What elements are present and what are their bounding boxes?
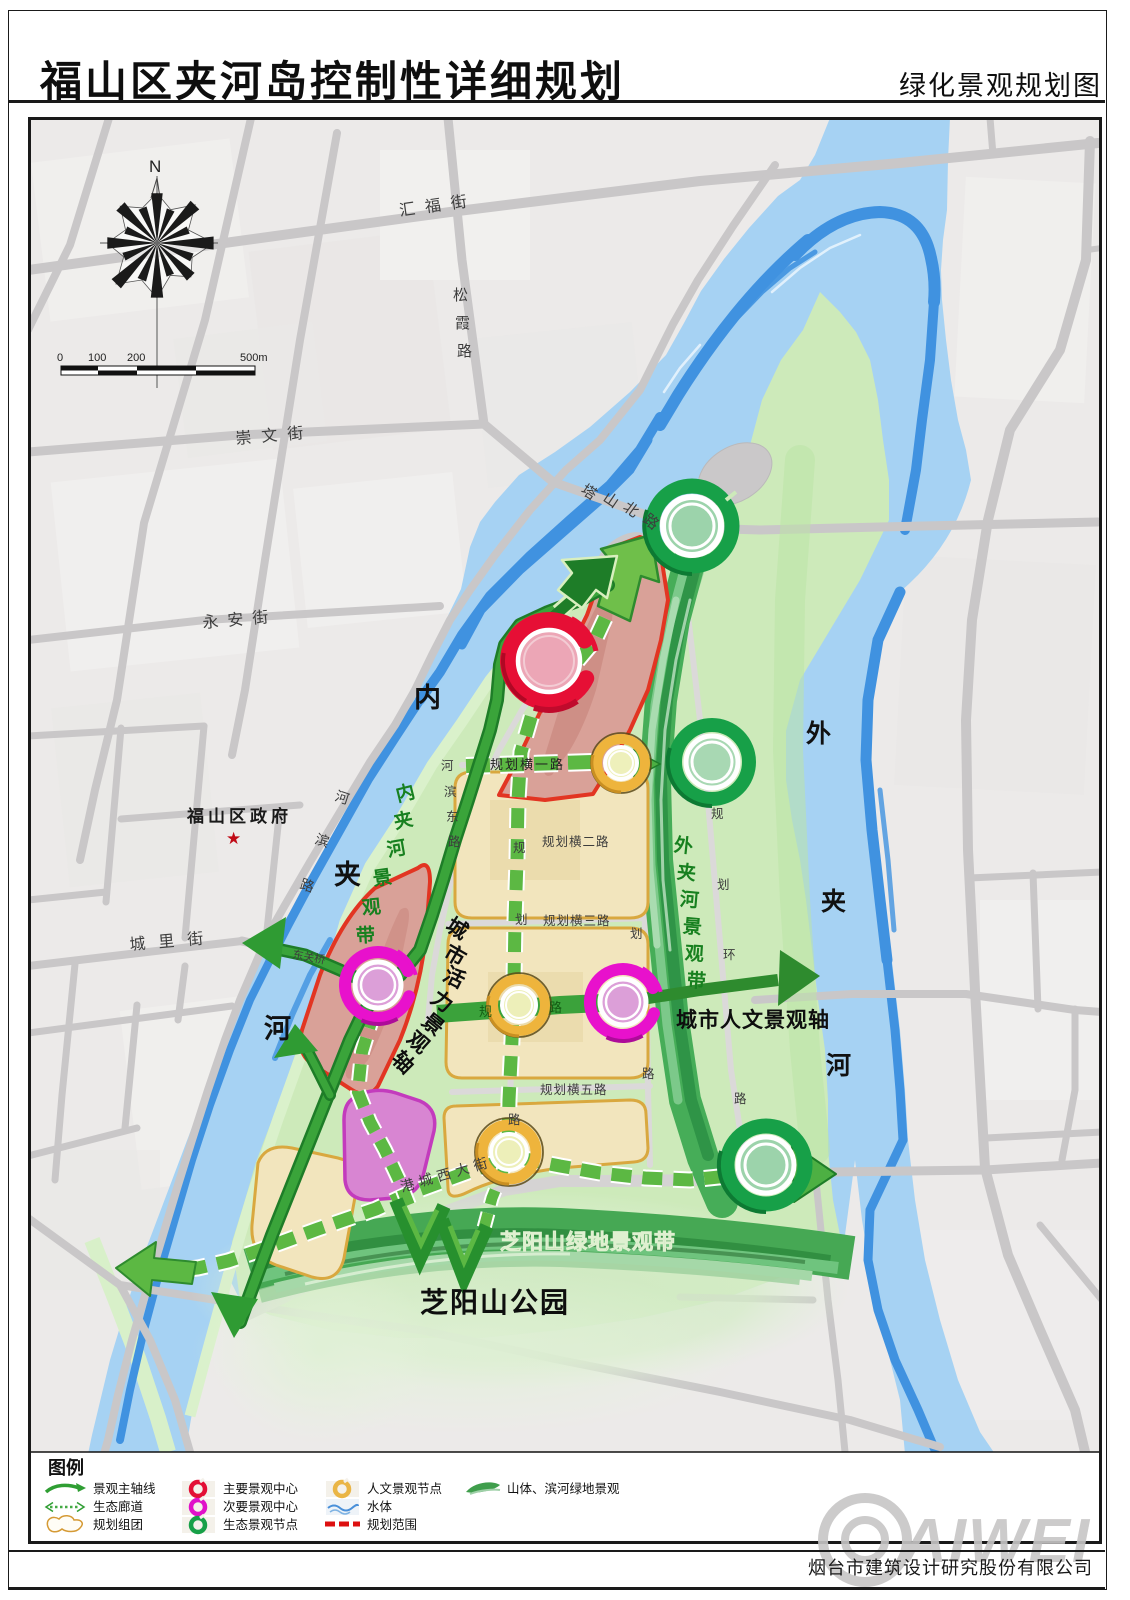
svg-text:人文景观节点: 人文景观节点: [367, 1481, 442, 1496]
svg-text:200: 200: [127, 352, 145, 364]
svg-text:规: 规: [513, 840, 526, 855]
svg-text:水体: 水体: [367, 1500, 393, 1514]
svg-text:芝阳山绿地景观带: 芝阳山绿地景观带: [500, 1230, 676, 1254]
svg-text:夹: 夹: [676, 861, 697, 885]
svg-text:路: 路: [448, 834, 461, 849]
svg-text:路: 路: [734, 1091, 747, 1106]
svg-text:城市人文景观轴: 城市人文景观轴: [676, 1008, 830, 1032]
svg-text:福山区政府: 福山区政府: [186, 806, 292, 826]
svg-text:500m: 500m: [240, 352, 268, 364]
svg-text:图例: 图例: [48, 1457, 84, 1478]
svg-text:规划横三路: 规划横三路: [543, 913, 611, 928]
svg-text:划: 划: [515, 913, 528, 927]
svg-text:规划组团: 规划组团: [93, 1517, 143, 1532]
svg-text:生态廊道: 生态廊道: [93, 1499, 144, 1514]
svg-text:夹: 夹: [821, 888, 846, 916]
svg-text:观: 观: [684, 942, 705, 965]
svg-text:路: 路: [642, 1066, 655, 1081]
svg-text:路: 路: [549, 1000, 562, 1015]
svg-text:规划横五路: 规划横五路: [540, 1082, 608, 1097]
svg-text:霞: 霞: [455, 315, 470, 332]
svg-text:河: 河: [264, 1014, 291, 1044]
svg-text:河: 河: [441, 759, 454, 773]
svg-text:滨: 滨: [444, 784, 457, 799]
svg-text:带: 带: [355, 924, 375, 947]
svg-text:芝阳山公园: 芝阳山公园: [420, 1287, 570, 1318]
svg-text:路: 路: [457, 343, 472, 360]
svg-text:规划范围: 规划范围: [367, 1517, 417, 1532]
svg-text:山体、滨河绿地景观: 山体、滨河绿地景观: [507, 1481, 620, 1496]
svg-text:规: 规: [479, 1004, 492, 1019]
svg-text:N: N: [149, 157, 161, 176]
svg-text:次要景观中心: 次要景观中心: [223, 1499, 299, 1514]
svg-text:规: 规: [711, 806, 724, 821]
svg-text:★: ★: [226, 829, 241, 848]
svg-text:观: 观: [361, 896, 382, 920]
svg-text:外: 外: [806, 719, 831, 748]
svg-text:100: 100: [88, 352, 106, 364]
svg-text:松: 松: [453, 287, 468, 304]
svg-text:划: 划: [630, 927, 643, 941]
svg-text:景观主轴线: 景观主轴线: [93, 1481, 156, 1496]
svg-text:生态景观节点: 生态景观节点: [223, 1518, 298, 1532]
svg-text:内: 内: [414, 683, 441, 713]
svg-text:规划横二路: 规划横二路: [542, 834, 610, 849]
svg-text:景: 景: [372, 866, 394, 890]
svg-text:带: 带: [686, 969, 707, 992]
svg-text:路: 路: [508, 1112, 521, 1127]
svg-text:河: 河: [826, 1052, 851, 1080]
svg-text:0: 0: [57, 352, 63, 364]
svg-text:河: 河: [385, 837, 408, 862]
svg-text:东: 东: [446, 810, 459, 824]
svg-text:划: 划: [717, 878, 730, 892]
svg-text:主要景观中心: 主要景观中心: [223, 1481, 299, 1496]
svg-text:外: 外: [673, 833, 694, 858]
svg-text:规划横一路: 规划横一路: [490, 757, 565, 772]
svg-text:景: 景: [682, 915, 703, 939]
svg-text:夹: 夹: [334, 860, 361, 890]
svg-text:河: 河: [679, 888, 700, 912]
svg-text:环: 环: [723, 948, 736, 962]
